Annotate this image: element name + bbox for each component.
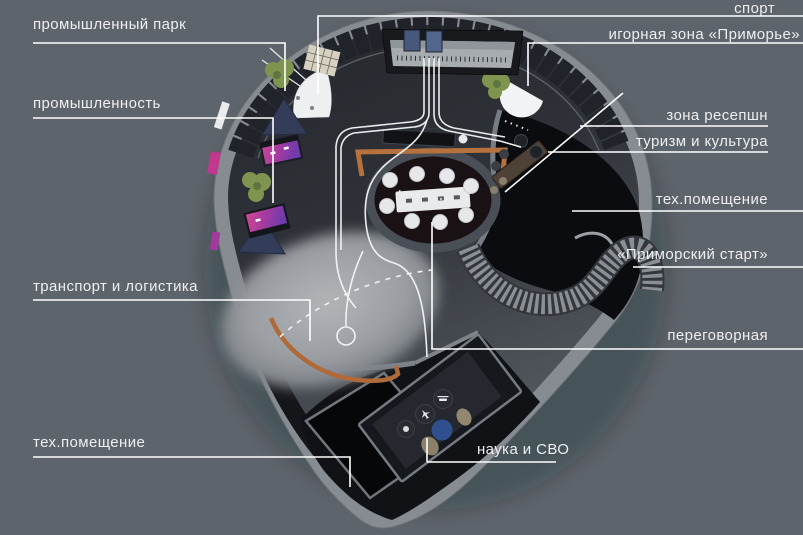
- label-meeting-room: переговорная: [667, 327, 768, 344]
- globe-pod: [432, 420, 453, 441]
- label-industrial-park: промышленный парк: [33, 16, 186, 33]
- rim-panel: [214, 101, 230, 129]
- label-tech-room-left: тех.помещение: [33, 434, 145, 451]
- label-transport: транспорт и логистика: [33, 278, 198, 295]
- floor-plan-scene: промышленный парк промышленность транспо…: [0, 0, 803, 535]
- label-reception: зона ресепшн: [666, 107, 768, 124]
- label-industry: промышленность: [33, 95, 161, 112]
- label-tourism: туризм и культура: [636, 133, 768, 150]
- floor-plan-illustration: [0, 0, 803, 535]
- label-sport: спорт: [734, 0, 775, 17]
- label-gaming-zone: игорная зона «Приморье»: [608, 26, 800, 43]
- label-science-svo: наука и СВО: [477, 441, 569, 458]
- label-tech-room-right: тех.помещение: [656, 191, 768, 208]
- label-primorsky-start: «Приморский старт»: [617, 246, 768, 263]
- leader-industrial-park: [33, 43, 285, 91]
- video-wall: [382, 29, 523, 75]
- reception-chair: [459, 135, 468, 144]
